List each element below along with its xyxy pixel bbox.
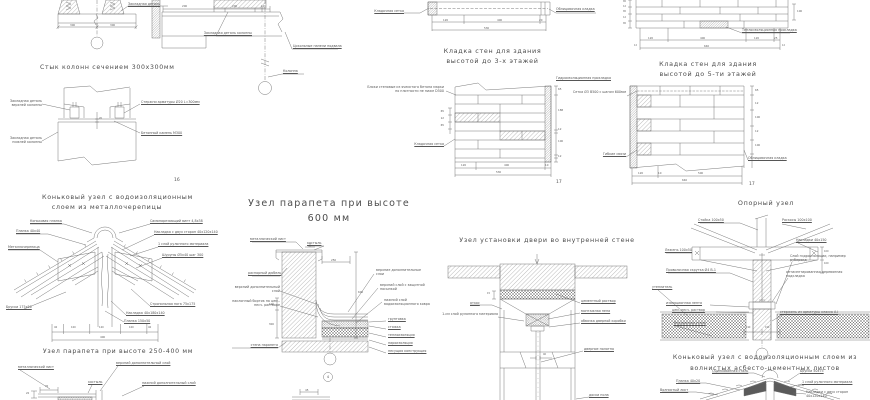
label-right-add-layers: верхние дополнительные слои [376,268,424,276]
dim: 65 [618,10,626,13]
dim: 100 [824,250,829,253]
dim: 120 [443,18,448,22]
label-galvanized-steel: Оцинкованная сталь [712,369,748,373]
label-bearing-structure: несущая конструкция [388,349,426,353]
dim: 100 [824,262,829,265]
dim: 190 [746,326,750,329]
label-foam: монтажная пена [581,309,610,313]
label-wire-twist: Проволочная скрутка Ø4 В-1 [666,268,716,272]
dim: 20 [99,117,102,120]
dim: 188 [558,108,563,112]
label-roll-layer: 1-см слой рулонного материала [442,312,498,316]
label-overlay: Накладка с двух сторон 40х120х140 [154,230,218,234]
label-spike: костыль [88,380,102,384]
title-parapet600-line1: Узел парапета при высоте [240,198,418,209]
label-basement-panels: Цокольные панели подвала [293,44,342,48]
dim: 500 [698,171,703,175]
dim: 120 [754,36,759,40]
label-bottom-layer: нижний слой водоизоляционного ковра [384,298,434,306]
column-joint-linework [42,0,168,165]
dim: 300 [262,322,274,326]
label-mortar: цем.-песч. раствор [672,308,705,312]
label-hydro-gasket: Гидроизоляционная прокладка [556,76,611,80]
label-plank2: Планка 150х50 [124,319,150,323]
label-upper-embed: Закладная деталь верхней колонны [4,99,42,107]
label-roll-layer: 1 слой рулонного материала [802,380,852,384]
title-parapet250: Узел парапета при высоте 250-400 мм [38,348,198,355]
parapet250-linework [20,366,144,400]
label-floor-boards: доски пола [589,393,609,397]
title-door-node: Узел установки двери во внутренней стене [452,236,642,244]
label-upper-add-layer: верхний дополнительный слой [234,285,280,293]
label-dowel: распорный дюбель [248,271,281,275]
figure-number: 16 [174,178,180,183]
label-wire-mesh: Сетка Ø3 В500 с шагом 600мм [562,90,626,94]
label-flexible-ties: Гибкие связи [590,152,626,156]
label-spike: костыль [307,241,321,245]
label-rebar-rod: стержень из арматуры класса А-I [780,310,838,314]
label-vapor-barrier: пароизоляция [388,341,413,345]
drawing-sheet: Стык колонн сечением 300х300мм Кладка ст… [0,0,870,400]
label-tape: изоляционная лента [666,301,702,305]
title-parapet600-line2: 600 мм [240,213,418,224]
dim: 65 [558,87,561,91]
title-ridge-asbestos-line2: волнистых асбесто-цементных листов [660,365,870,372]
title-masonry5-line2: высотой до 5-ти этажей [628,70,788,78]
dim: 40 [148,326,151,329]
dim: 100 [558,139,563,143]
dim: 600 [358,290,363,294]
label-metal-sheet: металлический лист [18,365,54,369]
label-door-leaf: дверное полотно [584,347,614,351]
dim: 40 [54,326,57,329]
dim: 400 [497,18,502,22]
dim: 65 [436,109,444,113]
title-masonry5-line1: Кладка стен для здания [628,60,788,68]
label-braces: Раскосы 100х100 [782,218,812,222]
dim: 100 [797,9,802,13]
figure-number: 17 [749,182,755,187]
title-ridge-metal-line2: слоем из металлочерепицы [42,203,172,211]
figure-number: 17 [556,180,562,185]
dim: 10 [658,171,661,175]
label-plan-left: Кладочная сетка [368,9,404,13]
title-ridge-asbestos-line1: Коньковый узел с водоизоляционным слоем … [660,354,870,361]
title-masonry3-line1: Кладка стен для здания [425,47,560,55]
dim: 12 [634,44,637,47]
label-door-frame: обвязка дверной коробки [581,319,626,323]
section-callout: 4 [324,375,332,379]
label-plates: Накладки 40х150 [796,238,827,242]
dim: 530 [484,26,489,30]
dim: 190 [765,326,769,329]
label-top-layer: верхний слой с защитной посыпкой [380,283,428,291]
title-column-joint: Стык колонн сечением 300х300мм [40,64,164,71]
label-metal-sheet: металлический лист [250,237,286,241]
label-insulation-gasket: Теплоизоляционная прокладка [742,28,797,32]
door-node-linework [448,254,627,400]
dim: 40 [543,353,546,356]
label-rafter: Стропильная нога 75х175 [150,302,195,306]
dim: 15 [487,292,490,295]
dim: 250 [331,258,336,262]
label-screws: Шурупы Ø5х40 шаг 300 [162,253,203,257]
dim: 12 [755,101,758,105]
dim: 12 [558,154,561,158]
dim: 65 [618,22,626,25]
label-grout: Бетонный камень М300 [141,131,182,135]
label-facing-masonry: Облицовочная кладка [748,156,787,160]
label-plank: Планка 40х20 [676,379,700,383]
label-insulation: утеплитель [652,285,672,289]
label-column: Колонна [283,69,298,73]
label-plate: Накладка 40х180х140 [126,311,165,315]
dim: 120 [99,326,104,329]
dim: 100 [262,302,274,306]
dim: 12 [558,127,561,131]
label-reveal: откос [470,301,480,305]
label-lower-layer: нижний дополнительный слой [142,381,196,385]
label-wall-blocks: Блоки стеновые из ячеистого бетона марки… [366,85,444,93]
dim: 640 [704,44,709,48]
dim: 12 [782,44,785,47]
label-ridge-strip: Коньковая планка [30,219,62,223]
dim: 120 [648,36,653,40]
label-sill: Лежень 100х50 [650,248,692,252]
dim: 65 [755,88,758,92]
label-antiseptic-pad: антисептированная деревянная подкладка [786,270,844,278]
dim: 400 [700,36,705,40]
dim: 12 [618,5,626,8]
label-masonry-mesh: Кладочная сетка [402,142,444,146]
title-support-node: Опорный узел [716,199,816,207]
label-cement-mortar: цементный раствор [581,299,616,303]
dim: 100 [129,326,134,329]
support-node-linework [658,215,870,360]
dim: 400 [100,335,105,339]
dim: 300 [70,23,75,27]
label-bars: Бруски 175х50 [6,305,32,309]
label-post: Стойка 100х50 [698,218,724,222]
label-primer: грунтовка [388,317,406,321]
title-masonry3-line2: высотой до 3-х этажей [425,57,560,65]
label-upper-layer: верхний дополнительный слой [116,361,170,365]
label-hydro-layer: Слой гидроизоляции, например рубероид [790,254,846,262]
label-inner-wall: Внутренняя стена [674,321,706,325]
dim: 200 [182,4,187,8]
dim: 400 [504,163,509,167]
label-bars: Бруски 50х75 [800,369,824,373]
label-overlays: Накладки с двух сторон 40х120х140 [806,390,866,398]
label-insulation: теплоизоляция [388,333,415,337]
label-embed-plate: Закладная деталь [128,2,160,6]
label-metal-tile: Металлочерепица [8,245,40,249]
dim: 10 [261,4,264,8]
dim: 10 [545,163,548,167]
dim: 12 [436,116,444,120]
dim: 640 [682,178,687,182]
dim: 530 [496,170,501,174]
dim: 20 [539,18,542,22]
dim: 12 [618,16,626,19]
dim: 200 [232,4,237,8]
label-wavy-sheet: Волнистый лист [660,388,688,392]
label-roll-layer: 1 слой рулонного материала [158,242,208,246]
label-rebar: Стержни арматуры Ø20 L=300мм [141,100,200,104]
dim: 12 [755,129,758,133]
dim: 100 [755,143,760,147]
parapet600-linework [232,242,386,400]
label-screed: стяжка [388,325,401,329]
dim: 65 [618,0,626,3]
title-ridge-metal-line1: Коньковый узел с водоизоляционным [42,193,172,201]
dim: 20 [26,392,29,395]
label-parapet-wall: стена парапета [230,343,278,347]
dim: 300 [110,23,115,27]
dim: 100 [71,326,76,329]
dim: 70 [45,385,48,388]
label-embed-column: Закладная деталь колонны [196,31,252,35]
dim: 45 [305,388,308,392]
dim: 100 [755,115,760,119]
dim: 65 [436,123,444,127]
label-lower-embed: Закладная деталь нижней колонны [4,136,42,144]
dim: 120 [638,171,643,175]
label-screw: Самонарезающий винт 4,8х38 [150,219,203,223]
label-plan-right: Облицовочная кладка [556,7,595,11]
dim: 120 [461,163,466,167]
dim: 25 [774,36,777,40]
label-plank: Планка 40х40 [16,229,40,233]
